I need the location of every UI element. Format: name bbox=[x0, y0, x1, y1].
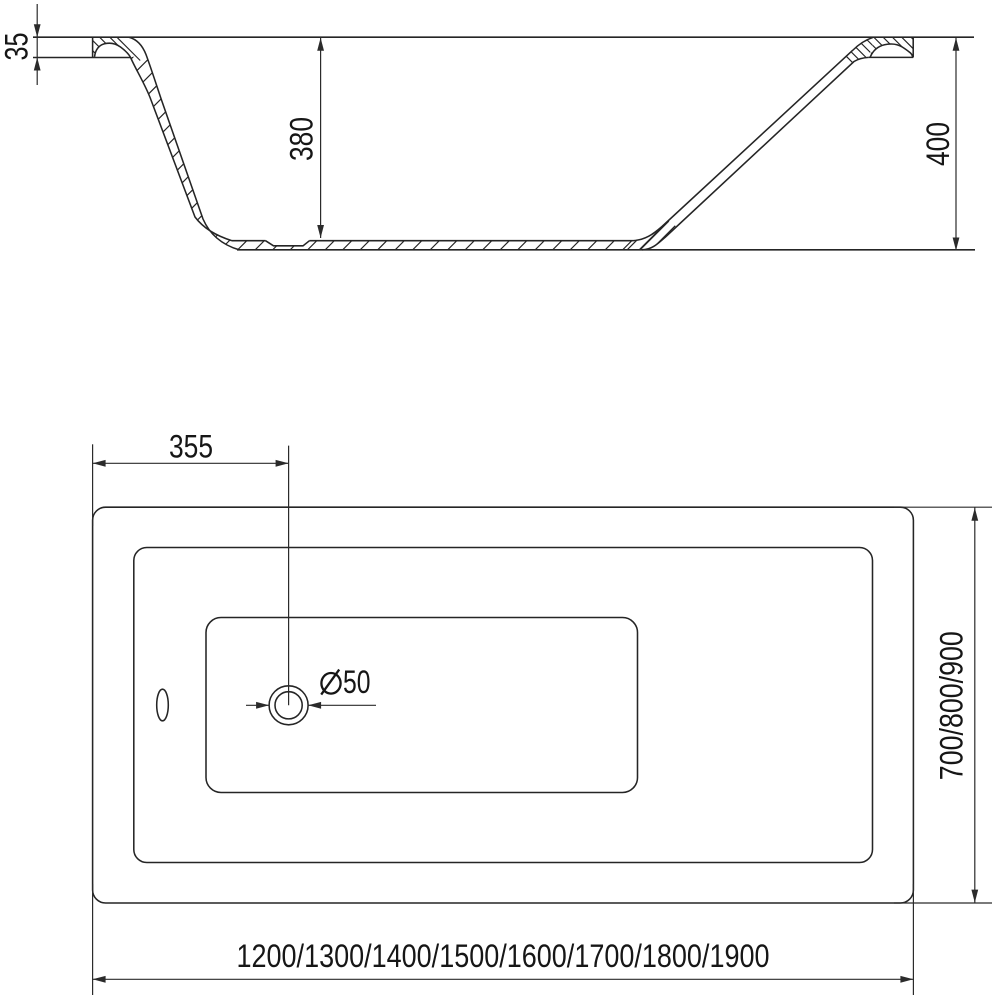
svg-text:355: 355 bbox=[169, 428, 213, 464]
svg-text:35: 35 bbox=[0, 33, 35, 61]
svg-text:50: 50 bbox=[343, 664, 371, 700]
svg-text:1200/1300/1400/1500/1600/1700/: 1200/1300/1400/1500/1600/1700/1800/1900 bbox=[237, 938, 770, 974]
svg-text:380: 380 bbox=[284, 117, 320, 161]
svg-text:700/800/900: 700/800/900 bbox=[933, 631, 969, 780]
svg-text:400: 400 bbox=[920, 122, 956, 166]
